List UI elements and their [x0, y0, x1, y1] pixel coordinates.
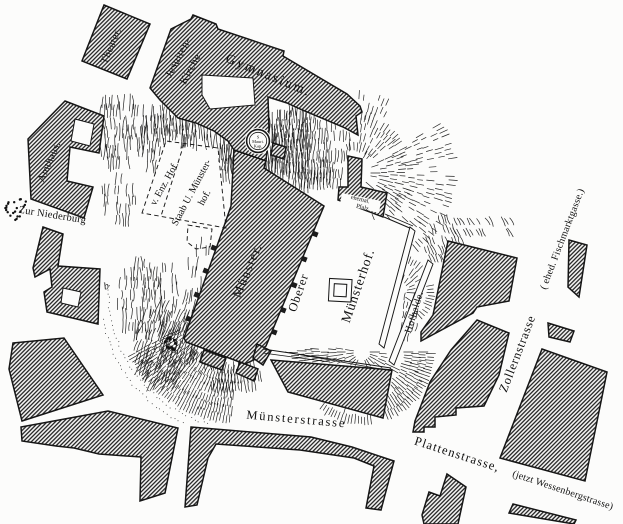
svg-text:Kap.: Kap. [254, 144, 262, 149]
